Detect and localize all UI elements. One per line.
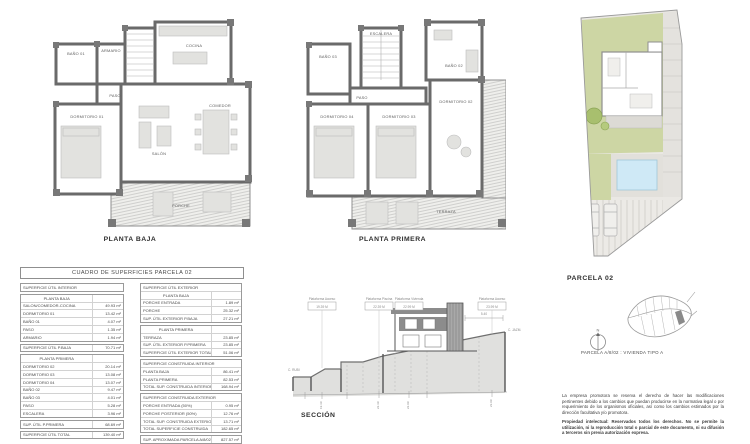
surface-value: 9.47 m² [92,387,123,394]
ground-floor-plan: BAÑO 01 ARMARIO COCINA PASO DORMITORIO 0… [53,14,258,232]
surface-value: 12.76 m² [211,410,241,417]
surface-label: PLANTA PRIMERA [141,377,211,382]
surface-label: ARMARIO [21,335,92,340]
surface-label: SUPERFICIE ÚTIL INTERIOR [21,285,123,290]
surface-row: SUPERFICIE ÚTIL EXTERIOR [141,284,241,291]
tree-icon [586,108,602,124]
surface-label: PORCHE [141,308,211,313]
surface-value [92,295,123,302]
site-plan-title: PARCELA 02 [567,275,627,282]
room-label-terraza: TERRAZA [436,209,456,214]
surface-table-block: SUPERFICIE ÚTIL EXTERIORPLANTA BAJAPORCH… [140,283,242,323]
surface-value [211,326,241,333]
surface-value: 3.96 m² [92,410,123,417]
surface-row: PASO5.28 m² [21,401,123,409]
surface-table-block: SUP. ÚTIL P.PRIMERA68.69 m² [20,420,124,429]
surface-row: DORMITORIO 0220.14 m² [21,362,123,370]
surface-value: 1.94 m² [92,334,123,341]
svg-text:5.40: 5.40 [481,312,487,316]
platform-level: 22.39 M [373,305,385,309]
surface-label: SUPERFICIE CONSTRUIDA EXTERIOR [141,395,241,400]
surface-row: TERRAZA23.85 m² [141,333,241,341]
dimension-540: 5.40 [465,312,503,321]
surface-row: SUP. ÚTIL P.PRIMERA68.69 m² [21,421,123,428]
surface-row: SUP. ÚTIL EXTERIOR P.BAJA27.21 m² [141,314,241,322]
surface-row: SUPERFICIE CONSTRUIDA EXTERIOR [141,394,241,401]
surface-value: 1.35 m² [92,326,123,333]
surface-label: SALON/COMEDOR-COCINA [21,303,92,308]
room-label-dormitorio3: DORMITORIO 03 [382,114,415,119]
room-label-paso: PASO [109,93,120,98]
surface-row: SUP. ÚTIL EXTERIOR P.PRIMERA23.85 m² [141,341,241,349]
surface-label: PLANTA BAJA [21,296,92,301]
surfaces-table-left-column: SUPERFICIE ÚTIL INTERIORPLANTA BAJASALON… [20,283,124,441]
axis-tick: 22.39 [376,401,380,409]
surface-label: DORMITORIO 04 [21,380,92,385]
surface-value: 4.01 m² [92,394,123,401]
surface-label: PORCHE POSTERIOR (50%) [141,411,211,416]
room-label-armario: ARMARIO [101,48,121,53]
pool [617,160,657,190]
site-plan [578,4,684,266]
surface-table-block: SUPERFICIE CONSTRUIDA EXTERIORPORCHE ENT… [140,393,242,433]
surface-row: ARMARIO1.94 m² [21,333,123,341]
legal-text: La empresa promotora se reserva el derec… [562,393,724,440]
platform-level: 19.39 M [316,305,328,309]
surface-table-block: SUPERFICIE ÚTIL P.BAJA70.71 m² [20,344,124,353]
surface-value: 51.06 m² [211,349,241,356]
room-label-bano3: BAÑO 03 [319,54,337,59]
driveway [663,11,682,197]
surface-row: TOTAL SUP. CONSTRUIDA EXTERIOR13.71 m² [141,417,241,425]
svg-text:N: N [597,328,600,333]
surface-label: SUP. APROXIMADA PARCELA A/8/02 [141,437,211,442]
street-label-left: C. RUBI [288,368,300,372]
surface-label: SUP. ÚTIL P.PRIMERA [21,422,92,427]
surface-label: DORMITORIO 01 [21,311,92,316]
surface-row: SUPERFICIE ÚTIL TOTAL139.40 m² [21,432,123,439]
surface-row: SUPERFICIE ÚTIL INTERIOR [21,284,123,291]
surface-label: SUPERFICIE ÚTIL P.BAJA [21,345,92,350]
surface-label: PORCHE ENTRADA (50%) [141,403,211,408]
surface-value: 82.53 m² [211,376,241,383]
surface-row: PORCHE25.32 m² [141,306,241,314]
room-label-dormitorio2: DORMITORIO 02 [439,99,472,104]
surface-table-block: PLANTA PRIMERADORMITORIO 0220.14 m²DORMI… [20,354,124,417]
surface-value [211,292,241,299]
first-floor-title: PLANTA PRIMERA [345,236,440,243]
surface-label: PORCHE ENTRADA [141,300,211,305]
surface-value: 27.21 m² [211,315,241,322]
surface-table-block: SUPERFICIE CONSTRUIDA INTERIORPLANTA BAJ… [140,359,242,391]
surface-label: DORMITORIO 03 [21,372,92,377]
surface-table-block: SUP. APROXIMADA PARCELA A/8/02827.57 m² [140,435,242,444]
surface-label: PLANTA PRIMERA [141,327,211,332]
surface-row: PORCHE ENTRADA1.89 m² [141,299,241,307]
platform-name: Plataforma Acceso [479,297,506,301]
room-label-dormitorio1: DORMITORIO 01 [70,114,103,119]
surface-table-block: PLANTA BAJASALON/COMEDOR-COCINA49.93 m²D… [20,294,124,342]
platform-level: 22.99 M [403,305,415,309]
surface-label: PLANTA BAJA [141,369,211,374]
surface-value: 13.08 m² [92,371,123,378]
room-label-cocina: COCINA [186,43,203,48]
platform-name: Plataforma Acceso [309,297,336,301]
surface-value: 23.85 m² [211,334,241,341]
surface-row: SUPERFICIE ÚTIL EXTERIOR TOTAL51.06 m² [141,348,241,356]
surface-label: SUP. ÚTIL EXTERIOR P.PRIMERA [141,342,211,347]
axis-tick: 22.99 [406,401,410,409]
ground-floor-title: PLANTA BAJA [90,236,170,243]
surface-value: 0.95 m² [211,402,241,409]
first-floor-plan: ESCALERA BAÑO 03 BAÑO 02 PASO DORMITORIO… [306,14,506,232]
surface-value [92,355,123,362]
platform-level: 23.99 M [486,305,498,309]
surface-label: ESCALERA [21,411,92,416]
tree-icon [601,122,609,130]
drawing-sheet: BAÑO 01 ARMARIO COCINA PASO DORMITORIO 0… [0,0,750,444]
terrace-side-area [482,80,506,198]
surface-label: TOTAL SUPERFICIE CONSTRUIDA [141,426,211,431]
surface-row: PLANTA PRIMERA [21,355,123,362]
surface-value: 5.28 m² [92,402,123,409]
surface-value: 13.07 m² [92,379,123,386]
surface-label: TERRAZA [141,335,211,340]
surface-value: 1.89 m² [211,300,241,307]
surface-label: SUPERFICIE ÚTIL EXTERIOR [141,285,241,290]
surface-value: 86.41 m² [211,368,241,375]
legal-paragraph-1: La empresa promotora se reserva el derec… [562,393,724,415]
surface-label: TOTAL SUP. CONSTRUIDA INTERIOR [141,384,211,389]
lawn-lower [582,154,611,200]
axis-tick: 19.39 [319,401,323,409]
surface-row: DORMITORIO 0313.08 m² [21,370,123,378]
legal-paragraph-2: Propiedad intelectual: Reservados todos … [562,419,724,436]
surface-row: PLANTA BAJA [21,295,123,302]
surface-label: PASO [21,403,92,408]
room-label-escalera: ESCALERA [370,31,393,36]
surface-label: SUPERFICIE ÚTIL EXTERIOR TOTAL [141,350,211,355]
surface-value: 68.69 m² [92,421,123,428]
house-footprint [602,42,662,128]
surface-row: PLANTA BAJA86.41 m² [141,367,241,375]
surface-label: BAÑO 03 [21,395,92,400]
surface-row: TOTAL SUP. CONSTRUIDA INTERIOR168.94 m² [141,383,241,391]
platform-name: Plataforma Piscina [366,297,393,301]
street-label-right: C. JAZM. [508,328,521,332]
surface-label: BAÑO 02 [21,387,92,392]
surface-value: 168.94 m² [211,384,241,391]
room-label-paso: PASO [356,95,367,100]
surface-value: 20.14 m² [92,363,123,370]
surface-row: BAÑO 034.01 m² [21,393,123,401]
surface-table-block: SUPERFICIE ÚTIL TOTAL139.40 m² [20,431,124,440]
surface-value: 13.71 m² [211,418,241,425]
surface-table-block: PLANTA PRIMERATERRAZA23.85 m²SUP. ÚTIL E… [140,325,242,357]
surface-value: 4.07 m² [92,318,123,325]
location-caption: PARCELA A/8/02 : VIVIENDA TIPO A [581,350,711,355]
room-label-bano1: BAÑO 01 [67,51,85,56]
room-label-porche: PORCHE [172,203,190,208]
surface-label: BAÑO 01 [21,319,92,324]
surface-label: TOTAL SUP. CONSTRUIDA EXTERIOR [141,419,211,424]
surface-row: BAÑO 029.47 m² [21,386,123,394]
surface-label: PASO [21,327,92,332]
surface-value: 139.40 m² [92,432,123,439]
surface-row: PLANTA BAJA [141,291,241,299]
location-sketch [625,288,697,348]
surfaces-table-title: CUADRO DE SUPERFICIES PARCELA 02 [20,267,244,279]
section-title: SECCIÓN [301,412,351,419]
surface-row: ESCALERA3.96 m² [21,409,123,417]
surface-row: PORCHE POSTERIOR (50%)12.76 m² [141,409,241,417]
surface-row: TOTAL SUPERFICIE CONSTRUIDA182.65 m² [141,425,241,433]
surface-row: SUP. APROXIMADA PARCELA A/8/02827.57 m² [141,436,241,443]
surface-row: PASO1.35 m² [21,325,123,333]
axis-tick: 23.99 [489,399,493,407]
platform-name: Plataforma Vivienda [395,297,424,301]
surface-row: DORMITORIO 0413.07 m² [21,378,123,386]
surface-label: SUPERFICIE CONSTRUIDA INTERIOR [141,361,241,366]
surface-table-block: SUPERFICIE ÚTIL INTERIOR [20,283,124,292]
surface-row: SUPERFICIE ÚTIL P.BAJA70.71 m² [21,345,123,352]
room-label-dormitorio4: DORMITORIO 04 [320,114,354,119]
surface-value: 49.93 m² [92,303,123,310]
surface-row: SALON/COMEDOR-COCINA49.93 m² [21,302,123,310]
surface-label: PLANTA BAJA [141,293,211,298]
surface-label: PLANTA PRIMERA [21,356,92,361]
surface-value: 23.85 m² [211,342,241,349]
surface-value: 182.65 m² [211,426,241,433]
surface-label: DORMITORIO 02 [21,364,92,369]
surface-value: 70.71 m² [92,345,123,352]
surface-label: SUPERFICIE ÚTIL TOTAL [21,432,92,437]
room-label-salon: SALÓN [152,151,166,156]
surface-row: PLANTA PRIMERA [141,326,241,333]
surfaces-table-right-column: SUPERFICIE ÚTIL EXTERIORPLANTA BAJAPORCH… [140,283,242,444]
section-drawing: Plataforma Acceso 19.39 M Plataforma Pis… [287,291,527,415]
surface-row: DORMITORIO 0113.42 m² [21,309,123,317]
surface-row: PORCHE ENTRADA (50%)0.95 m² [141,401,241,409]
surface-label: SUP. ÚTIL EXTERIOR P.BAJA [141,316,211,321]
room-label-bano2: BAÑO 02 [445,63,463,68]
surface-value: 13.42 m² [92,310,123,317]
room-label-comedor: COMEDOR [209,103,231,108]
surface-value: 25.32 m² [211,307,241,314]
surface-value: 827.57 m² [211,436,241,443]
surface-row: BAÑO 014.07 m² [21,317,123,325]
surface-row: SUPERFICIE CONSTRUIDA INTERIOR [141,360,241,367]
surface-row: PLANTA PRIMERA82.53 m² [141,375,241,383]
